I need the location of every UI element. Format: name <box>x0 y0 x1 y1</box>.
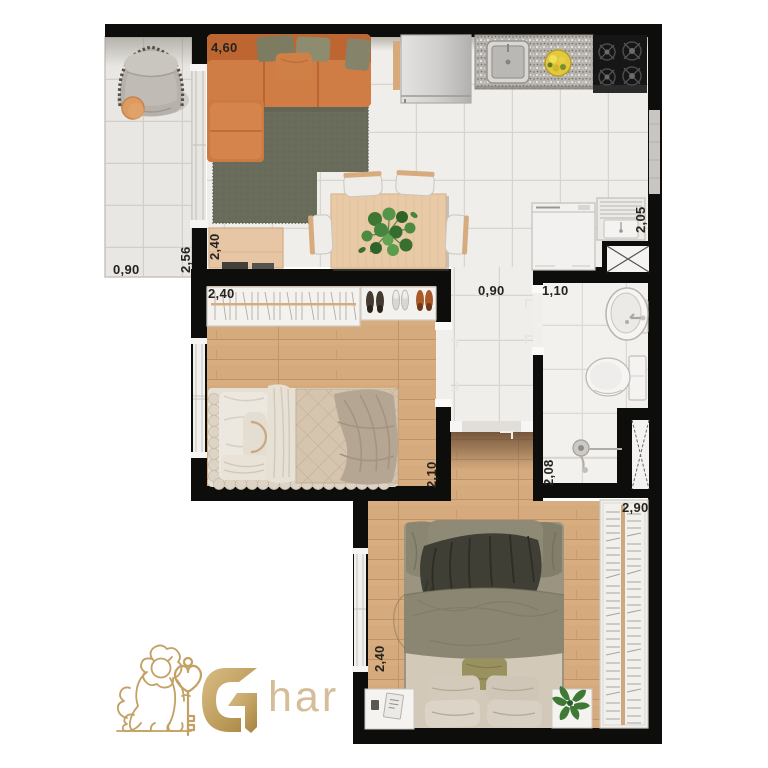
svg-text:har: har <box>268 673 339 721</box>
svg-text:1,10: 1,10 <box>542 283 569 298</box>
svg-text:2,08: 2,08 <box>541 459 556 486</box>
svg-text:2,40: 2,40 <box>207 233 222 260</box>
svg-text:2,40: 2,40 <box>208 286 235 301</box>
svg-text:2,40: 2,40 <box>372 645 387 672</box>
svg-text:0,90: 0,90 <box>478 283 505 298</box>
svg-text:2,10: 2,10 <box>424 461 439 488</box>
svg-text:2,90: 2,90 <box>622 500 649 515</box>
svg-text:4,60: 4,60 <box>211 40 238 55</box>
svg-text:2,05: 2,05 <box>633 206 648 233</box>
svg-text:0,90: 0,90 <box>113 262 140 277</box>
svg-text:2,56: 2,56 <box>178 246 193 273</box>
